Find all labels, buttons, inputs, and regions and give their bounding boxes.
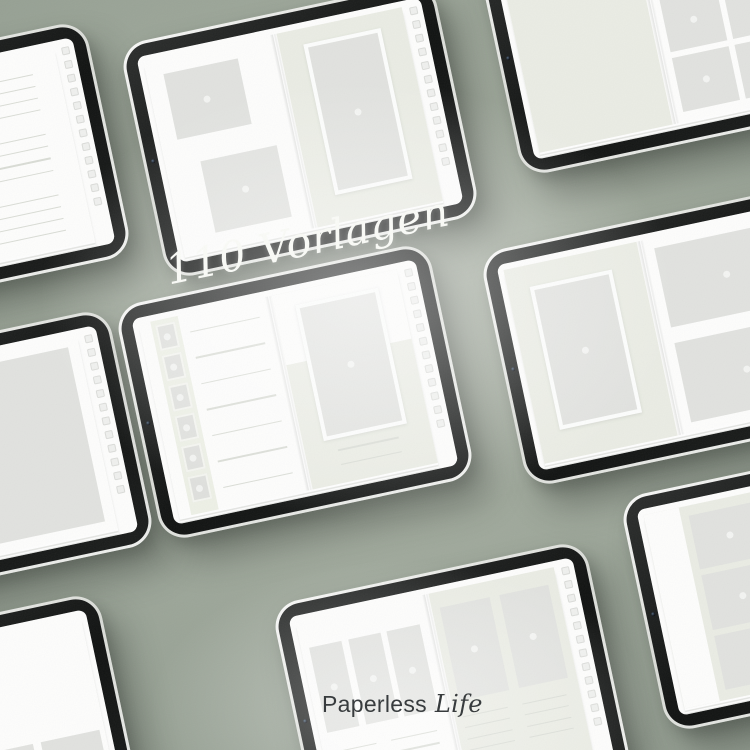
page-tab-icon <box>104 430 113 439</box>
tablet-center <box>114 241 477 542</box>
photo-placeholder <box>41 730 114 750</box>
ruled-line <box>212 420 281 436</box>
tablet-screen <box>491 0 750 160</box>
page-tab-icon <box>90 183 99 192</box>
page-tab-icon <box>414 34 423 43</box>
page-tab-icon <box>409 296 418 305</box>
page-tab-icon <box>69 87 78 96</box>
page-tab-icon <box>89 362 98 371</box>
photo-placeholder <box>440 597 509 700</box>
tablet-screen <box>0 609 129 750</box>
tablet-bottom-center <box>271 539 634 750</box>
photo-placeholder <box>702 561 750 630</box>
photo-placeholder <box>161 352 186 382</box>
ruled-line <box>201 369 270 385</box>
page-tab-icon <box>587 689 596 698</box>
ruled-line <box>0 230 66 258</box>
page-tab-icon <box>78 128 87 137</box>
page-tab-icon <box>75 115 84 124</box>
page-tab-icon <box>83 334 92 343</box>
page-tab-icon <box>566 594 575 603</box>
page-tab-icon <box>433 405 442 414</box>
page-tab-icon <box>113 471 122 480</box>
ruled-line <box>206 394 275 410</box>
photo-placeholder <box>174 412 199 442</box>
page-tab-icon <box>101 416 110 425</box>
page-tab-icon <box>575 635 584 644</box>
camera-icon <box>302 719 307 724</box>
tablet-bottom-left <box>0 591 146 750</box>
brand-word-regular: Paperless <box>322 691 427 717</box>
page-tab-icon <box>435 129 444 138</box>
ruled-line <box>223 472 292 488</box>
ruled-line <box>394 742 439 750</box>
camera-icon <box>145 421 150 426</box>
page-tab-icon <box>584 676 593 685</box>
page-tab-icon <box>86 348 95 357</box>
photo-placeholder <box>180 443 205 473</box>
page-tab-icon <box>81 142 90 151</box>
ruled-line <box>525 705 569 716</box>
page-tab-icon <box>581 662 590 671</box>
camera-icon <box>150 159 155 164</box>
page-tab-icon <box>420 61 429 70</box>
page-tab-icon <box>426 88 435 97</box>
page-tab-icon <box>84 156 93 165</box>
tablet-edge <box>0 19 133 320</box>
page-tab-icon <box>590 703 599 712</box>
page-tab-icon <box>107 444 116 453</box>
page-tab-icon <box>423 75 432 84</box>
ruled-line <box>470 740 514 750</box>
ruled-line <box>0 170 53 198</box>
brand-word-italic: Life <box>427 690 483 718</box>
page-tab-icon <box>424 364 433 373</box>
page-tab-icon <box>406 282 415 291</box>
photo-grid-page <box>643 457 750 708</box>
tablet-bezel <box>0 595 143 750</box>
page-tab-icon <box>421 350 430 359</box>
ruled-line <box>341 451 402 465</box>
journal-lines <box>0 74 40 137</box>
photo-placeholder <box>672 46 740 112</box>
page-tab-icon <box>66 74 75 83</box>
ruled-line <box>195 343 264 359</box>
tablet-screen <box>288 557 615 750</box>
page-tab-icon <box>430 391 439 400</box>
ruled-line <box>468 729 512 740</box>
ruled-line <box>527 716 571 727</box>
page-tab-icon <box>87 169 96 178</box>
page-tab-icon <box>408 6 417 15</box>
camera-icon <box>505 56 510 61</box>
tablet-bottom-right <box>619 432 750 733</box>
page-tab-icon <box>417 47 426 56</box>
page-spread <box>498 0 750 153</box>
tablet-edge <box>619 432 750 733</box>
ruled-line <box>217 446 286 462</box>
page-tab-icon <box>592 717 601 726</box>
page-tab-icon <box>415 323 424 332</box>
photo-placeholder <box>200 145 292 233</box>
page-spread <box>643 457 750 708</box>
camera-icon <box>650 612 655 617</box>
tablet-bezel <box>274 543 630 750</box>
tablet-edge <box>0 591 146 750</box>
ruled-line <box>522 694 566 705</box>
tablet-bezel <box>622 436 750 730</box>
tablet-edge <box>479 187 750 488</box>
page-tab-icon <box>432 116 441 125</box>
page-tab-icon <box>438 143 447 152</box>
page-spread <box>138 269 437 518</box>
journal-lines <box>0 134 53 197</box>
journal-lines <box>522 693 578 738</box>
caption-lines <box>338 437 402 465</box>
page-tab-icon <box>60 46 69 55</box>
page-tab-icon <box>435 419 444 428</box>
tablet-bezel <box>0 23 130 317</box>
brand-logo: Paperless Life <box>322 690 483 718</box>
tablet-edge <box>271 539 634 750</box>
page-tab-icon <box>412 309 421 318</box>
page-tab-icon <box>95 389 104 398</box>
photo-placeholder <box>654 221 750 327</box>
photo-placeholder <box>715 621 750 690</box>
page-spread <box>503 212 750 463</box>
page-tab-icon <box>418 337 427 346</box>
ruled-line <box>466 718 510 729</box>
tablet-screen <box>0 37 116 303</box>
photo-placeholder <box>674 316 750 422</box>
page-tab-icon <box>63 60 72 69</box>
page-tab-icon <box>403 268 412 277</box>
photo-placeholder <box>659 0 727 52</box>
photo-placeholder <box>187 473 212 503</box>
tablet-middle-right <box>479 187 750 488</box>
page-tab-icon <box>429 102 438 111</box>
photo-placeholder <box>529 269 642 430</box>
ruled-line <box>338 437 399 451</box>
camera-icon <box>510 367 515 372</box>
photo-page <box>0 616 122 750</box>
ruled-line <box>331 743 376 750</box>
page-spread <box>0 47 95 296</box>
tablet-edge <box>114 241 477 542</box>
cover-page <box>498 0 672 153</box>
page-spread <box>295 567 594 750</box>
photo-placeholder <box>303 28 412 195</box>
journal-lines <box>391 729 449 750</box>
notes-page <box>0 47 95 296</box>
photo-placeholder <box>499 585 568 688</box>
tablet-edge <box>474 0 750 178</box>
page-tab-icon <box>92 197 101 206</box>
journal-lines <box>331 741 389 750</box>
page-tab-icon <box>427 378 436 387</box>
page-tab-icon <box>92 375 101 384</box>
page-tab-icon <box>115 485 124 494</box>
tablet-screen <box>496 205 750 471</box>
photo-placeholder <box>689 501 750 570</box>
page-tab-icon <box>560 566 569 575</box>
page-tab-icon <box>563 580 572 589</box>
page-tab-icon <box>98 403 107 412</box>
page-tab-icon <box>572 621 581 630</box>
photo-placeholder <box>155 322 180 352</box>
ruled-line <box>0 110 40 138</box>
tablet-screen <box>0 325 139 591</box>
page-tab-icon <box>569 607 578 616</box>
page-tab-icon <box>110 457 119 466</box>
ruled-line <box>391 730 436 741</box>
tablet-top-right <box>474 0 750 178</box>
photo-placeholder <box>168 382 193 412</box>
photo-placeholder <box>163 58 251 140</box>
tablet-screen <box>131 259 458 525</box>
tablet-bezel <box>477 0 750 174</box>
page-spread <box>0 616 122 750</box>
promo-scene: 110 Vorlagen Paperless Life <box>0 0 750 750</box>
page-tab-icon <box>440 157 449 166</box>
tablet-top-left <box>0 19 133 320</box>
tablet-bezel <box>482 191 750 485</box>
journal-lines <box>0 194 66 257</box>
page-tab-icon <box>411 20 420 29</box>
page-tab-icon <box>578 648 587 657</box>
ruled-line <box>529 728 573 739</box>
ruled-line <box>190 317 259 333</box>
page-tab-icon <box>72 101 81 110</box>
tablet-screen <box>636 450 750 716</box>
